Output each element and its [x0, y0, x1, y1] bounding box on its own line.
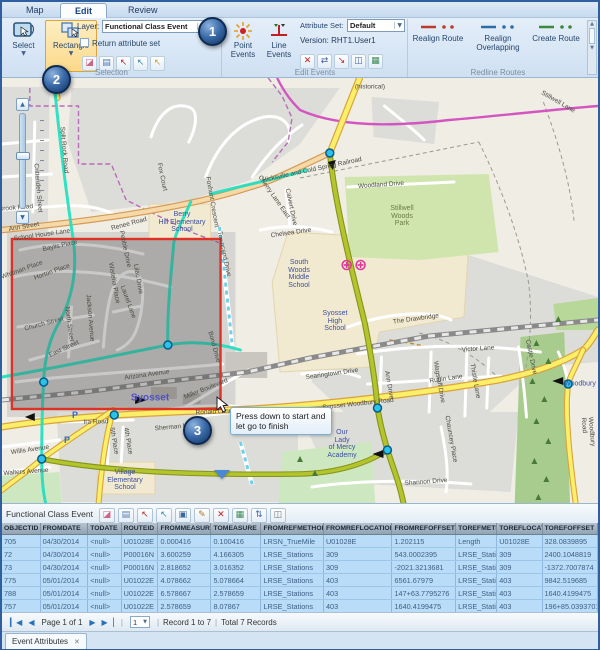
app-window: Map Edit Review Select ▼ [0, 0, 600, 650]
redline-routes-group-label: Redline Routes [409, 68, 587, 77]
cell: 4.078662 [158, 574, 211, 587]
return-attribute-set-label: Return attribute set [92, 39, 160, 48]
scrollbar-thumb[interactable] [589, 28, 595, 44]
table-row[interactable]: 7304/30/2014<null>P00016N2.8186523.01635… [2, 561, 598, 574]
map-view[interactable]: Fox CourtFoxhunt CrescentCherry Lane Eas… [2, 78, 598, 503]
cell: 0.000416 [158, 535, 211, 548]
cell: 403 [497, 600, 542, 613]
tab-map[interactable]: Map [12, 3, 58, 18]
cell: LRSE_Stations [456, 587, 497, 600]
scroll-up-icon[interactable]: ▲ [590, 21, 594, 27]
edit-icon[interactable]: ✎ [194, 508, 210, 523]
zoom-out-button[interactable]: ▼ [16, 211, 29, 224]
cell: <null> [88, 535, 121, 548]
cell: U01028E [121, 535, 158, 548]
cell: LRSE_Stations [456, 600, 497, 613]
line-events-icon [269, 21, 289, 41]
column-header[interactable]: FROMREFLOCATION [324, 523, 392, 535]
select-events-icon[interactable]: ↖ [137, 508, 153, 523]
delete-icon[interactable]: ✕ [213, 508, 229, 523]
cell: P00016N [121, 561, 158, 574]
cell: 309 [497, 548, 542, 561]
next-page-button[interactable]: ▶ [89, 618, 95, 627]
create-route-button[interactable]: Create Route [532, 22, 580, 68]
layer-value: Functional Class Event [105, 22, 188, 31]
event-attributes-tab-label: Event Attributes [12, 637, 68, 646]
cell: 705 [2, 535, 40, 548]
column-header[interactable]: ROUTEID [121, 523, 158, 535]
table-toolbar-icons: ◪▤↖↖▣✎✕▦⇅◫ [99, 504, 289, 523]
scroll-down-icon[interactable]: ▼ [590, 45, 594, 51]
cell: 1.202115 [392, 535, 456, 548]
column-header[interactable]: TOMEASURE [211, 523, 261, 535]
column-header[interactable]: TOREFOFFSET [542, 523, 598, 535]
cell: 05/01/2014 [40, 587, 88, 600]
callout-2-number: 2 [53, 72, 60, 87]
cell: 403 [324, 600, 392, 613]
sort-icon[interactable]: ⇅ [251, 508, 267, 523]
column-header[interactable]: OBJECTID [2, 523, 40, 535]
selection-group: Select ▼ Rectangle ▼ Layer: Functional C… [2, 19, 222, 77]
close-tab-icon[interactable]: ✕ [74, 638, 80, 646]
callout-1: 1 [198, 17, 227, 46]
point-events-icon [233, 21, 253, 41]
map-tooltip: Press down to start and let go to finish [230, 407, 332, 435]
zoom-track[interactable] [19, 113, 26, 209]
table-row[interactable]: 77505/01/2014<null>U01022E4.0786625.0786… [2, 574, 598, 587]
cell: 403 [497, 574, 542, 587]
realign-overlapping-icon [478, 22, 518, 32]
ribbon-scrollbar[interactable]: ▲▼ [587, 20, 597, 75]
table-row[interactable]: 78805/01/2014<null>U01022E6.5786672.5786… [2, 587, 598, 600]
pagination-bar: ▎◀ ◀ Page 1 of 1 ▶ ▶▕ | 1▼ | Record 1 to… [2, 612, 598, 631]
cell: 6.578667 [158, 587, 211, 600]
cell: 72 [2, 548, 40, 561]
callout-1-number: 1 [209, 24, 216, 39]
zoom-in-button[interactable]: ▲ [16, 98, 29, 111]
attribute-set-label: Attribute Set: [300, 21, 343, 30]
column-header[interactable]: TOREFLOCATION [497, 523, 542, 535]
layer-dropdown[interactable]: Functional Class Event ▼ [102, 20, 208, 33]
table-row[interactable]: 70504/30/2014<null>U01028E0.0004160.1004… [2, 535, 598, 548]
attribute-set-caret[interactable]: ▼ [394, 22, 402, 29]
attribute-grid-wrap[interactable]: OBJECTIDFROMDATETODATEROUTEIDFROMMEASURE… [2, 523, 598, 612]
prev-page-button[interactable]: ◀ [28, 618, 34, 627]
column-header[interactable]: FROMDATE [40, 523, 88, 535]
cell: 788 [2, 587, 40, 600]
cell: 05/01/2014 [40, 574, 88, 587]
cell: 196+85.0393701 [542, 600, 598, 613]
column-header[interactable]: FROMREFOFFSET [392, 523, 456, 535]
cell: 2400.1048819 [542, 548, 598, 561]
table-row[interactable]: 75705/01/2014<null>U01022E2.5786598.0786… [2, 600, 598, 613]
record-range: Record 1 to 7 [163, 618, 211, 627]
cell: LRSE_Stations [456, 548, 497, 561]
bottom-tab-bar: Event Attributes ✕ [2, 631, 598, 649]
tab-review[interactable]: Review [114, 3, 172, 18]
ribbon: Map Edit Review Select ▼ [2, 2, 598, 78]
cell: U01028E [497, 535, 542, 548]
select-add-icon[interactable]: ↖ [156, 508, 172, 523]
callout-2: 2 [42, 65, 71, 94]
table-row[interactable]: 7204/30/2014<null>P00016N3.6002594.16630… [2, 548, 598, 561]
column-header[interactable]: FROMMEASURE [158, 523, 211, 535]
tab-event-attributes[interactable]: Event Attributes ✕ [5, 633, 87, 649]
cell: 1640.4199475 [542, 587, 598, 600]
cell: 309 [324, 548, 392, 561]
cell: LRSE_Stations [261, 548, 324, 561]
event-window-icon[interactable]: ◫ [351, 54, 366, 69]
cell: 5.078664 [211, 574, 261, 587]
page-number-dropdown[interactable]: 1▼ [130, 616, 150, 628]
snap-event-icon[interactable]: ↘ [334, 54, 349, 69]
last-page-button[interactable]: ▶▕ [102, 618, 114, 627]
cell: U01028E [324, 535, 392, 548]
cell: U01022E [121, 587, 158, 600]
attribute-set-row: Attribute Set: [300, 21, 343, 30]
cell: 1640.4199475 [392, 600, 456, 613]
callout-3-number: 3 [194, 423, 201, 438]
cell: 2.818652 [158, 561, 211, 574]
column-header[interactable]: TODATE [88, 523, 121, 535]
realign-overlapping-button[interactable]: Realign Overlapping [467, 22, 529, 68]
cell: 403 [324, 574, 392, 587]
header-row: OBJECTIDFROMDATETODATEROUTEIDFROMMEASURE… [2, 523, 598, 535]
cell: 04/30/2014 [40, 535, 88, 548]
cell: 8.07867 [211, 600, 261, 613]
map-zoom-slider[interactable]: ▲ ▼ [16, 98, 29, 224]
export-icon[interactable]: ◫ [270, 508, 286, 523]
cell: P00016N [121, 548, 158, 561]
cell: U01022E [121, 574, 158, 587]
redline-routes-group: Realign Route Realign Overlapping Create… [409, 19, 587, 77]
cell: LRSE_Stations [261, 561, 324, 574]
realign-route-icon [418, 22, 458, 32]
column-header[interactable]: TOREFMETHOD [456, 523, 497, 535]
show-table-icon[interactable]: ▤ [118, 508, 134, 523]
return-attribute-set-checkbox[interactable] [80, 38, 89, 47]
edit-events-icon-row: ✕⇄↘◫▦ [300, 50, 385, 69]
realign-route-button[interactable]: Realign Route [412, 22, 464, 68]
cell: LRSE_Stations [261, 574, 324, 587]
grid-icon[interactable]: ▦ [232, 508, 248, 523]
cell: LRSE_Stations [456, 574, 497, 587]
version-label: Version: RHT1.User1 [300, 36, 376, 45]
event-attributes-panel: Functional Class Event ◪▤↖↖▣✎✕▦⇅◫ OBJECT… [2, 503, 598, 648]
cell: 775 [2, 574, 40, 587]
cell: 05/01/2014 [40, 600, 88, 613]
panel-collapse-arrow-icon[interactable] [214, 470, 230, 479]
attribute-set-dropdown[interactable]: Default ▼ [347, 19, 405, 32]
cell: 04/30/2014 [40, 548, 88, 561]
select-button[interactable]: Select ▼ [5, 20, 42, 72]
cell: 403 [497, 587, 542, 600]
cell: LRSE_Stations [456, 561, 497, 574]
zoom-handle[interactable] [16, 152, 30, 160]
cell: LRSE_Stations [261, 587, 324, 600]
cell: 543.0002395 [392, 548, 456, 561]
cell: -2021.3213681 [392, 561, 456, 574]
cell: 9842.519685 [542, 574, 598, 587]
edit-events-group: Point Events Line Events Attribute Set: … [223, 19, 408, 77]
cell: 328.0839895 [542, 535, 598, 548]
line-events-button[interactable]: Line Events [261, 20, 297, 72]
cell: 6561.67979 [392, 574, 456, 587]
cell: 147+63.7795276 [392, 587, 456, 600]
cell: 2.578659 [158, 600, 211, 613]
cell: 757 [2, 600, 40, 613]
select-dropdown-caret[interactable]: ▼ [21, 51, 26, 56]
page-number-value: 1 [133, 618, 137, 627]
cell: 309 [324, 561, 392, 574]
cell: <null> [88, 561, 121, 574]
cell: 3.600259 [158, 548, 211, 561]
save-icon[interactable]: ▣ [175, 508, 191, 523]
cell: 3.016352 [211, 561, 261, 574]
record-total: Total 7 Records [221, 618, 277, 627]
attribute-set-value: Default [350, 21, 375, 30]
first-page-button[interactable]: ▎◀ [10, 618, 22, 627]
tab-edit[interactable]: Edit [60, 3, 107, 18]
cell: Length [456, 535, 497, 548]
cell: LRSE_Stations [261, 600, 324, 613]
cell: LRSN_TrueMile [261, 535, 324, 548]
cell: <null> [88, 587, 121, 600]
edit-events-group-label: Edit Events [223, 68, 407, 77]
event-grid-icon[interactable]: ▦ [368, 54, 383, 69]
column-header[interactable]: FROMREFMETHOD [261, 523, 324, 535]
mouse-cursor-icon [214, 396, 230, 414]
table-toolbar: Functional Class Event ◪▤↖↖▣✎✕▦⇅◫ [2, 504, 598, 523]
attribute-table: OBJECTIDFROMDATETODATEROUTEIDFROMMEASURE… [2, 523, 598, 612]
create-route-icon [536, 22, 576, 32]
cell: 4.166305 [211, 548, 261, 561]
selection-group-label: Selection [2, 68, 221, 77]
layer-label: Layer: [77, 22, 99, 31]
map-canvas [2, 78, 598, 503]
cell: 2.578659 [211, 587, 261, 600]
table-title: Functional Class Event [6, 509, 93, 519]
cell: 04/30/2014 [40, 561, 88, 574]
cell: <null> [88, 574, 121, 587]
cell: -1372.7007874 [542, 561, 598, 574]
rectangle-dropdown-caret[interactable]: ▼ [69, 51, 74, 56]
return-attribute-set-row: Return attribute set [80, 38, 160, 48]
ribbon-tab-bar: Map Edit Review [2, 2, 598, 18]
cell: 309 [497, 561, 542, 574]
cell: <null> [88, 600, 121, 613]
point-events-button[interactable]: Point Events [225, 20, 261, 72]
merge-event-icon[interactable]: ⇄ [317, 54, 332, 69]
cell: <null> [88, 548, 121, 561]
cell: 73 [2, 561, 40, 574]
callout-3: 3 [183, 416, 212, 445]
cell: 403 [324, 587, 392, 600]
clear-selection-icon[interactable]: ◪ [99, 508, 115, 523]
cell: 0.100416 [211, 535, 261, 548]
cell: U01022E [121, 600, 158, 613]
split-event-icon[interactable]: ✕ [300, 54, 315, 69]
page-indicator: Page 1 of 1 [41, 618, 82, 627]
select-tool-icon [13, 21, 35, 41]
